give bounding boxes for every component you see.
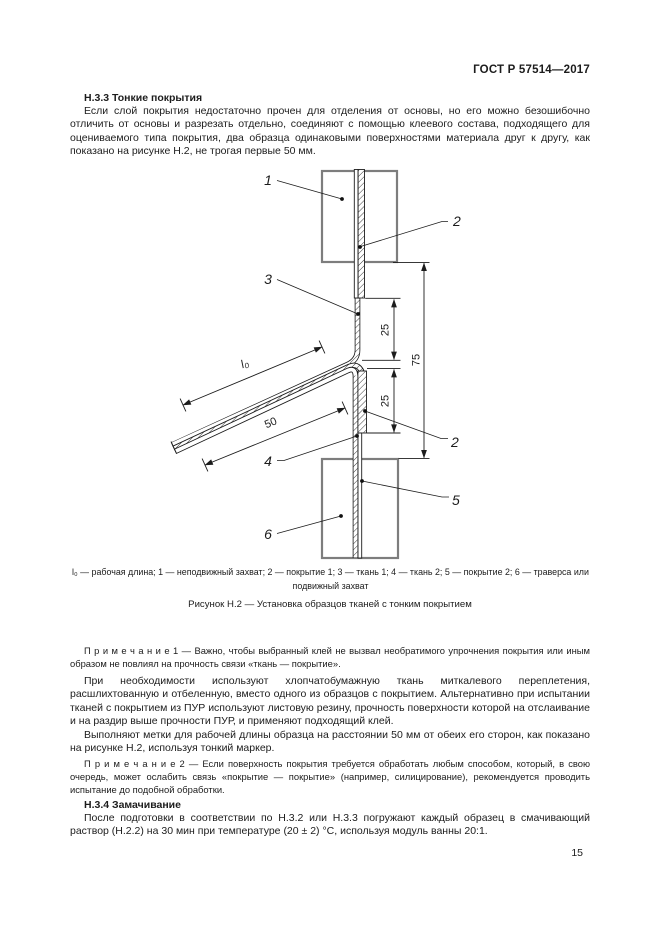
figure-h2-drawing: 25 25 75 l₀ 50 — [0, 160, 661, 564]
dim-75: 75 — [411, 354, 423, 366]
section-h33-title: Н.3.3 Тонкие покрытия — [70, 92, 590, 104]
dim-25-top: 25 — [380, 324, 392, 336]
label-6-movable-clamp: 6 — [264, 526, 272, 542]
note-1: П р и м е ч а н и е 1 — Важно, чтобы выб… — [70, 644, 590, 670]
coating-2-band — [358, 433, 362, 558]
coating-1-glued-remnant — [358, 371, 367, 433]
paragraph-marks: Выполняют метки для рабочей длины образц… — [70, 729, 590, 756]
label-2-coating-1-glued: 2 — [450, 434, 459, 450]
dimension-lines — [183, 263, 424, 465]
fabric-1-band — [354, 170, 358, 299]
note-2: П р и м е ч а н и е 2 — Если поверхность… — [70, 757, 590, 797]
dim-l0: l₀ — [239, 357, 251, 371]
dim-line-l0 — [183, 347, 322, 405]
figure-title: Рисунок Н.2 — Установка образцов тканей … — [70, 599, 590, 610]
dim-50: 50 — [263, 415, 279, 431]
standard-header: ГОСТ Р 57514—2017 — [70, 64, 590, 76]
label-3-fabric-1: 3 — [264, 271, 272, 287]
document-page: ГОСТ Р 57514—2017 Н.3.3 Тонкие покрытия … — [0, 0, 661, 936]
label-5-coating-2: 5 — [452, 492, 460, 508]
dim-line-50 — [205, 408, 345, 465]
figure-legend: l₀ — рабочая длина; 1 — неподвижный захв… — [63, 566, 598, 593]
page-number: 15 — [70, 847, 583, 859]
coating-1-band — [358, 170, 364, 299]
section-h34-paragraph: После подготовки в соответствии по Н.3.2… — [70, 812, 590, 839]
label-4-fabric-2: 4 — [264, 453, 272, 469]
section-h34-title: Н.3.4 Замачивание — [70, 799, 590, 811]
extension-lines — [180, 262, 429, 471]
figure-h2: 25 25 75 l₀ 50 — [0, 160, 661, 564]
paragraph-fabric-substitute: При необходимости используют хлопчатобум… — [70, 675, 590, 729]
label-2-coating-1: 2 — [452, 213, 461, 229]
section-h33-paragraph: Если слой покрытия недостаточно прочен д… — [70, 105, 590, 159]
label-1-fixed-clamp: 1 — [264, 172, 272, 188]
dim-25-bottom: 25 — [380, 395, 392, 407]
